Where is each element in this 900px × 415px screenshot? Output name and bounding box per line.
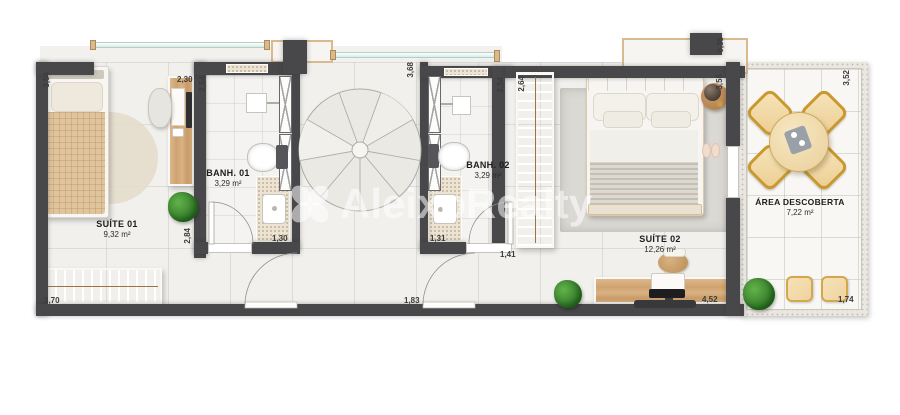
dim-banh01-depth: 2,54 <box>199 76 207 92</box>
suite02-desk-shelf <box>634 300 696 308</box>
bath1-niche-shelf <box>226 64 268 73</box>
wall-left <box>36 62 48 316</box>
dim-suite02-desk: 4,52 <box>702 296 718 304</box>
label-suite01: SUÍTE 01 9,32 m² <box>72 219 162 240</box>
dim-suite01-wall: 2,84 <box>184 228 192 244</box>
dim-suite01-wardrobe: 3,70 <box>44 297 60 305</box>
suite01-plant <box>168 192 198 222</box>
railing-post-1 <box>90 40 96 50</box>
wall-bath2-bottom <box>420 242 466 254</box>
label-banh01: BANH. 01 3,29 m² <box>196 168 260 189</box>
wall-suite02-deck-upper <box>726 62 740 146</box>
dim-hall-door: 1,83 <box>404 297 420 305</box>
bath2-shower-glass-upper <box>428 76 441 133</box>
dim-deck-bottom: 1,74 <box>838 296 854 304</box>
wall-bath2-right <box>492 66 505 248</box>
banh01-name: BANH. 01 <box>196 168 260 179</box>
railing-post-3 <box>330 50 336 60</box>
suite02-nightstand-ball <box>717 101 723 107</box>
dim-banh02-width: 1,31 <box>430 235 446 243</box>
bath1-toilet-tank <box>276 145 288 169</box>
deck-plant <box>743 278 775 310</box>
suite02-slipper-right <box>711 143 720 158</box>
label-area-descoberta: ÁREA DESCOBERTA 7,22 m² <box>744 197 856 218</box>
suite02-name: SUÍTE 02 <box>618 234 702 245</box>
deck-table-plates <box>791 132 797 138</box>
banh02-area: 3,29 m² <box>456 171 520 181</box>
glass-railing-center <box>333 52 497 58</box>
bath2-niche-shelf <box>444 68 488 76</box>
label-suite02: SUÍTE 02 12,26 m² <box>618 234 702 255</box>
dim-column-top: 0,35 <box>717 37 725 53</box>
suite01-monitor <box>186 92 192 128</box>
suite02-blanket-stripes <box>590 162 698 205</box>
bath2-sink <box>452 96 471 115</box>
dim-suite02-side: 3,55 <box>716 74 724 90</box>
wall-suite02-deck-lower <box>726 198 740 316</box>
banh02-name: BANH. 02 <box>456 160 520 171</box>
suite01-area: 9,32 m² <box>72 230 162 240</box>
bath2-drain <box>438 207 443 212</box>
suite02-closet <box>516 72 554 248</box>
bath1-drain <box>272 206 277 211</box>
suite01-desk-item <box>172 128 184 137</box>
bath1-door-threshold <box>208 243 252 253</box>
bath2-faucet-line <box>441 103 453 105</box>
suite02-plant <box>554 280 582 308</box>
suite02-monitor-screen <box>649 289 685 298</box>
floor-plan: SUÍTE 01 9,32 m² BANH. 01 3,29 m² BANH. … <box>0 0 900 415</box>
suite02-deck-door <box>727 146 739 198</box>
wall-bath1-right <box>292 62 300 250</box>
suite02-footboard <box>588 204 702 215</box>
suite01-wardrobe <box>44 268 162 304</box>
suite02-cushion-right <box>651 111 691 128</box>
glass-railing-left <box>93 42 268 48</box>
bath2-shower-tray <box>433 194 457 224</box>
railing-post-4 <box>494 50 500 62</box>
suite01-name: SUÍTE 01 <box>72 219 162 230</box>
area-descoberta-area: 7,22 m² <box>744 208 856 218</box>
dim-closet-depth: 2,64 <box>518 76 526 92</box>
suite01-desk-papers <box>171 88 185 126</box>
banh01-area: 3,29 m² <box>196 179 260 189</box>
dim-stair-void: 3,68 <box>407 62 415 78</box>
suite02-slipper-left <box>702 143 711 158</box>
dim-suite01-side: 3,54 <box>43 72 51 88</box>
suite02-headboard <box>588 78 700 91</box>
suite01-pillow <box>51 82 103 112</box>
suite01-desk-chair <box>148 88 172 128</box>
label-banh02: BANH. 02 3,29 m² <box>456 160 520 181</box>
dim-deck-side: 3,52 <box>843 70 851 86</box>
structural-column-center <box>283 40 307 74</box>
wall-bath1-bottom-right <box>252 242 300 254</box>
deck-stool-left <box>786 276 813 302</box>
bath1-sink <box>246 93 267 113</box>
wall-bath2-left <box>420 62 428 250</box>
wall-bath1-bottom-left <box>194 242 208 254</box>
dim-suite01-desk: 2,30 <box>177 76 193 84</box>
suite02-area: 12,26 m² <box>618 245 702 255</box>
bath1-shower-glass-upper <box>279 76 292 133</box>
suite02-cushion-left <box>603 111 643 128</box>
railing-post-2 <box>264 40 270 50</box>
area-descoberta-name: ÁREA DESCOBERTA <box>744 197 856 208</box>
dim-banh02-door: 1,41 <box>500 251 516 259</box>
dim-banh02-depth: 2,54 <box>497 77 505 93</box>
suite01-blanket <box>47 112 105 214</box>
dim-banh01-width: 1,30 <box>272 235 288 243</box>
